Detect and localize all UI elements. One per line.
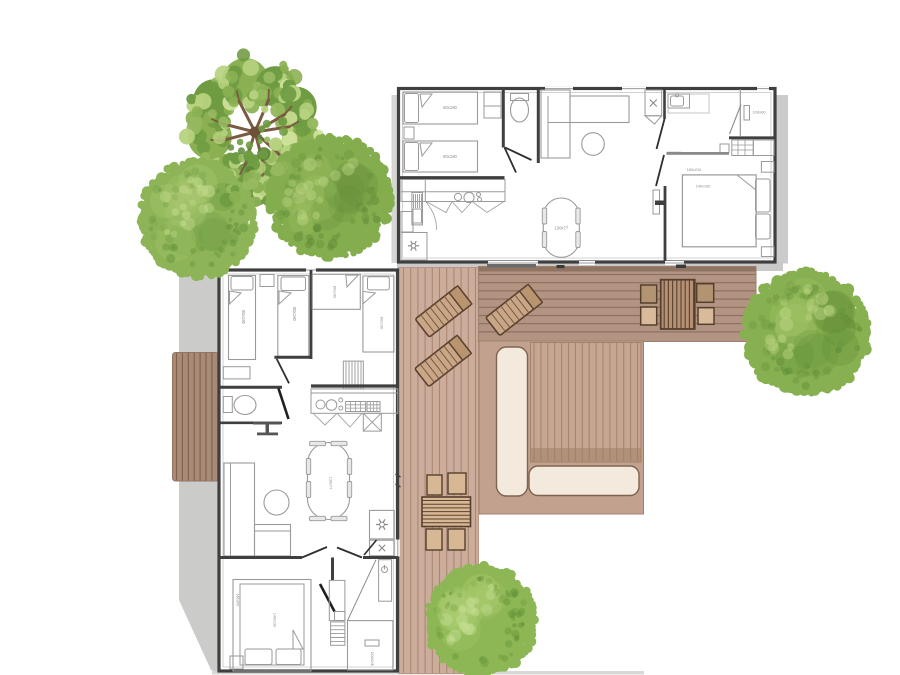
svg-text:100x60: 100x60 xyxy=(752,110,766,115)
svg-text:160x200: 160x200 xyxy=(236,594,240,606)
svg-text:80x190: 80x190 xyxy=(333,286,337,298)
svg-text:80x190: 80x190 xyxy=(241,310,246,324)
svg-text:130x77: 130x77 xyxy=(554,226,568,231)
svg-text:140x190: 140x190 xyxy=(273,613,277,628)
svg-text:140x190: 140x190 xyxy=(696,185,711,189)
svg-text:130x77: 130x77 xyxy=(329,477,333,489)
svg-text:80x190: 80x190 xyxy=(380,317,384,329)
svg-text:160x210: 160x210 xyxy=(687,168,702,172)
svg-text:DOUCHE: DOUCHE xyxy=(370,652,374,666)
svg-text:80x190: 80x190 xyxy=(443,154,457,159)
svg-text:80x190: 80x190 xyxy=(292,307,297,321)
svg-text:80x190: 80x190 xyxy=(443,105,457,110)
